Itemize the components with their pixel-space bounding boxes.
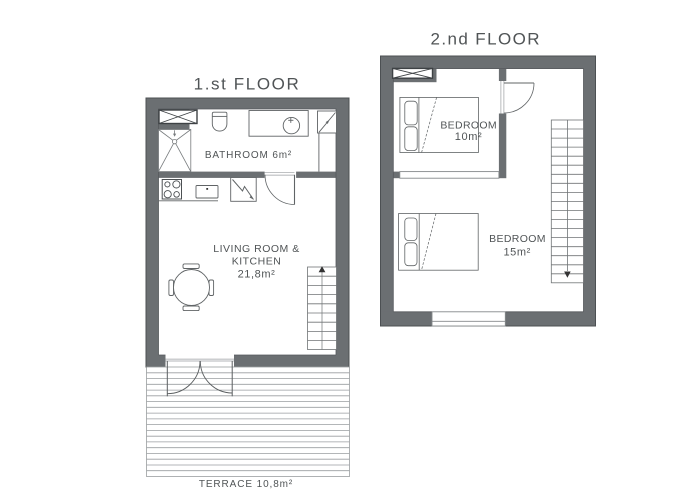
- svg-text:TERRACE 10,8m²: TERRACE 10,8m²: [199, 479, 293, 490]
- svg-text:21,8m²: 21,8m²: [238, 268, 276, 280]
- svg-text:2.nd FLOOR: 2.nd FLOOR: [431, 29, 541, 48]
- svg-text:10m²: 10m²: [455, 131, 482, 143]
- svg-text:1.st FLOOR: 1.st FLOOR: [194, 74, 301, 93]
- svg-text:15m²: 15m²: [503, 247, 530, 259]
- svg-text:LIVING ROOM &: LIVING ROOM &: [213, 243, 299, 255]
- svg-text:KITCHEN: KITCHEN: [232, 256, 282, 268]
- svg-text:BEDROOM: BEDROOM: [440, 120, 497, 132]
- svg-text:BEDROOM: BEDROOM: [489, 233, 546, 245]
- svg-text:BATHROOM 6m²: BATHROOM 6m²: [205, 150, 292, 161]
